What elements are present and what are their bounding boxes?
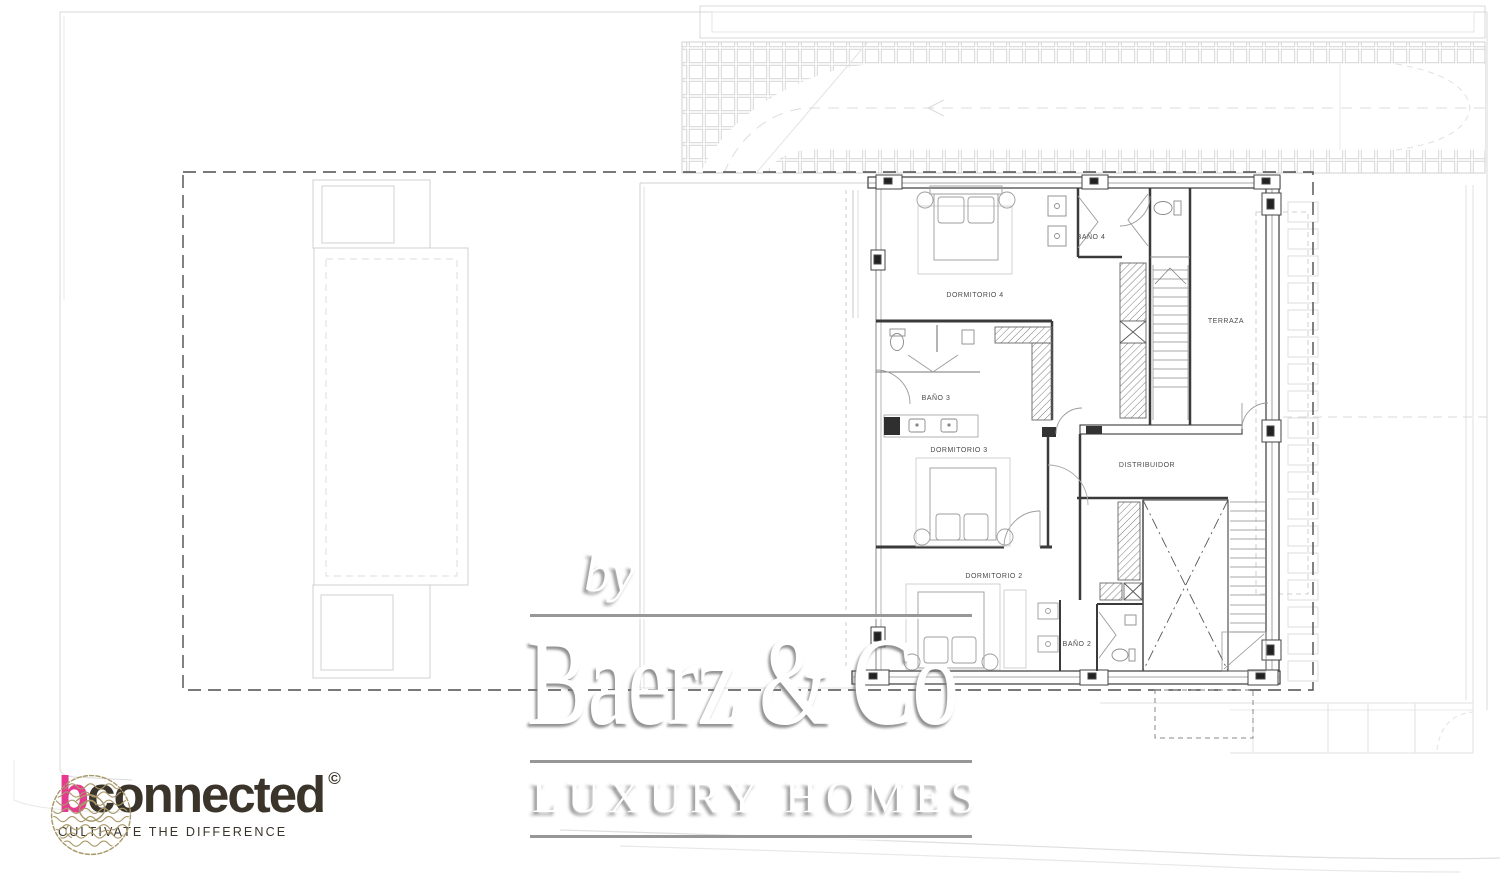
interior-walls [876, 188, 1242, 671]
floorplan-page: DORMITORIO 4 BAÑO 4 TERRAZA BAÑO 3 DORMI… [0, 0, 1500, 875]
agency-logo: bconnected© CULTIVATE THE DIFFERENCE [48, 768, 341, 839]
watermark-tagline: LUXURY HOMES [532, 772, 984, 823]
door-jamb [1042, 427, 1056, 437]
wall-end-cap [1086, 426, 1102, 434]
bano4-fixtures [1048, 196, 1181, 246]
copyright-icon: © [328, 769, 341, 788]
watermark-rule-middle [530, 760, 972, 763]
room-label-bano-2: BAÑO 2 [1063, 639, 1092, 648]
driveway-tiles [682, 6, 1485, 173]
room-label-dormitorio-2: DORMITORIO 2 [965, 573, 1022, 580]
watermark-by: by [584, 542, 635, 604]
pool-area [313, 180, 468, 678]
bed-dormitorio3 [914, 458, 1013, 546]
room-label-terraza: TERRAZA [1208, 318, 1244, 325]
bed-dormitorio4 [917, 186, 1015, 274]
room-label-bano-3: BAÑO 3 [922, 393, 951, 402]
watermark-rule-bottom [530, 835, 972, 838]
staircase-upper [1153, 265, 1188, 420]
room-label-dormitorio-4: DORMITORIO 4 [946, 292, 1003, 299]
bano3-fixtures [884, 329, 978, 437]
room-labels: DORMITORIO 4 BAÑO 4 TERRAZA BAÑO 3 DORMI… [922, 232, 1244, 648]
room-label-distribuidor: DISTRIBUIDOR [1119, 462, 1175, 469]
void-and-staircase-lower [1143, 500, 1266, 671]
watermark-brand: Baerz & Co [527, 620, 958, 746]
room-label-bano-4: BAÑO 4 [1077, 232, 1106, 241]
bano2-fixtures [1112, 615, 1136, 661]
dragon-medallion-icon [48, 772, 134, 858]
room-label-dormitorio-3: DORMITORIO 3 [930, 447, 987, 454]
building [852, 175, 1281, 685]
